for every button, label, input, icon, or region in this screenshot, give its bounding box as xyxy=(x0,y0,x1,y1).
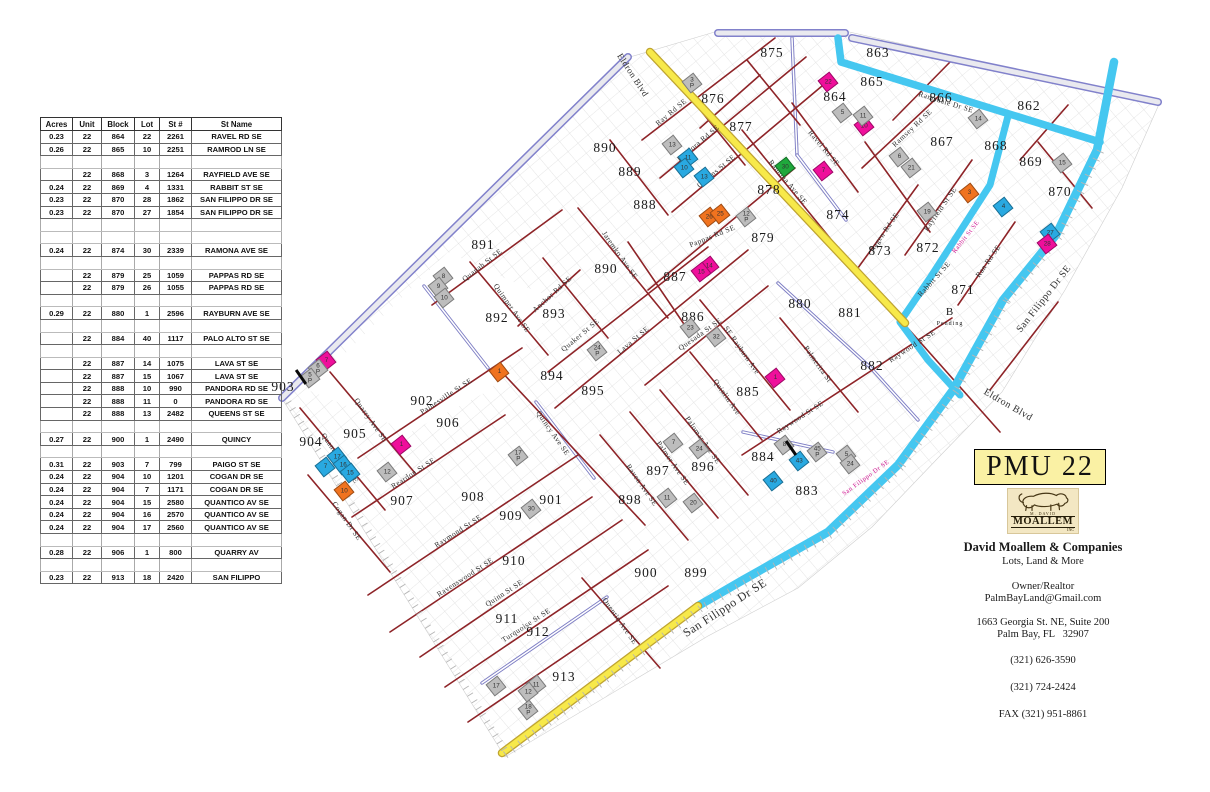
cell: 22 xyxy=(73,496,102,509)
col-header-st-name: St Name xyxy=(192,118,282,131)
cell xyxy=(41,345,73,358)
cell: 864 xyxy=(102,131,135,144)
table-row: 22888132482QUEENS ST SE xyxy=(41,408,282,421)
cell xyxy=(73,156,102,169)
cell: 800 xyxy=(160,546,192,559)
cell: 10 xyxy=(135,471,160,484)
cell: 1171 xyxy=(160,483,192,496)
cell xyxy=(160,534,192,547)
cell: PAPPAS RD SE xyxy=(192,269,282,282)
cell: 22 xyxy=(73,206,102,219)
cell: 22 xyxy=(73,370,102,383)
cell: 22 xyxy=(73,168,102,181)
cell: 1264 xyxy=(160,168,192,181)
cell: 880 xyxy=(102,307,135,320)
cell xyxy=(102,420,135,433)
cell: 2560 xyxy=(160,521,192,534)
cell: 2420 xyxy=(160,571,192,584)
cell xyxy=(135,345,160,358)
cell xyxy=(41,294,73,307)
cell: 2482 xyxy=(160,408,192,421)
cell: 1059 xyxy=(160,269,192,282)
cell: 2596 xyxy=(160,307,192,320)
cell: 27 xyxy=(135,206,160,219)
cell xyxy=(192,294,282,307)
cell: 888 xyxy=(102,408,135,421)
contact-line: 1663 Georgia St. NE, Suite 200 xyxy=(963,617,1123,628)
table-row: 0.2322870281862SAN FILIPPO DR SE xyxy=(41,193,282,206)
col-header-unit: Unit xyxy=(73,118,102,131)
cell xyxy=(73,219,102,232)
cell: COGAN DR SE xyxy=(192,483,282,496)
cell xyxy=(192,420,282,433)
cell: 903 xyxy=(102,458,135,471)
cell xyxy=(135,294,160,307)
cell: RABBIT ST SE xyxy=(192,181,282,194)
table-row: 0.242290471171COGAN DR SE xyxy=(41,483,282,496)
cell xyxy=(73,231,102,244)
table-row: 22888110PANDORA RD SE xyxy=(41,395,282,408)
cell xyxy=(160,294,192,307)
cell: 913 xyxy=(102,571,135,584)
table-row-blank xyxy=(41,156,282,169)
table-row: 2288810990PANDORA RD SE xyxy=(41,382,282,395)
table-row: 0.2422874302339RAMONA AVE SE xyxy=(41,244,282,257)
cell xyxy=(41,370,73,383)
cell xyxy=(73,445,102,458)
logo-suffix-text: INC xyxy=(1067,528,1074,532)
cell xyxy=(135,559,160,572)
cell: PAIGO ST SE xyxy=(192,458,282,471)
cell: 887 xyxy=(102,370,135,383)
contact-line: (321) 626-3590 xyxy=(963,655,1123,666)
cell: 22 xyxy=(135,131,160,144)
cell: QUANTICO AV SE xyxy=(192,521,282,534)
cell: 22 xyxy=(73,244,102,257)
cell: 868 xyxy=(102,168,135,181)
table-row: 22879261055PAPPAS RD SE xyxy=(41,282,282,295)
cell: 22 xyxy=(73,193,102,206)
cell xyxy=(73,345,102,358)
table-row-blank xyxy=(41,256,282,269)
cell xyxy=(41,156,73,169)
cell: 1 xyxy=(135,546,160,559)
cell xyxy=(135,534,160,547)
cell: 904 xyxy=(102,483,135,496)
table-row-blank xyxy=(41,219,282,232)
cell xyxy=(41,269,73,282)
cell: 22 xyxy=(73,395,102,408)
cell xyxy=(135,420,160,433)
cell xyxy=(41,332,73,345)
cell: 2490 xyxy=(160,433,192,446)
cell: 0.24 xyxy=(41,244,73,257)
cell: 22 xyxy=(73,282,102,295)
cell: 0.24 xyxy=(41,471,73,484)
cell: 22 xyxy=(73,307,102,320)
cell: 22 xyxy=(73,508,102,521)
cell: 904 xyxy=(102,508,135,521)
cell xyxy=(102,231,135,244)
cell: 1055 xyxy=(160,282,192,295)
cell xyxy=(160,156,192,169)
cell: 22 xyxy=(73,357,102,370)
cell xyxy=(192,319,282,332)
cell: 1117 xyxy=(160,332,192,345)
col-header-lot: Lot xyxy=(135,118,160,131)
cell: 0.28 xyxy=(41,546,73,559)
cell: 0.27 xyxy=(41,433,73,446)
cell xyxy=(41,219,73,232)
cell: 10 xyxy=(135,382,160,395)
cell: 22 xyxy=(73,458,102,471)
table-row-blank xyxy=(41,294,282,307)
cell: 22 xyxy=(73,546,102,559)
cell xyxy=(102,219,135,232)
cell xyxy=(135,156,160,169)
cell: PANDORA RD SE xyxy=(192,382,282,395)
cell: 904 xyxy=(102,471,135,484)
cell: 799 xyxy=(160,458,192,471)
table-row: 0.2422904162570QUANTICO AV SE xyxy=(41,508,282,521)
table-row-blank xyxy=(41,231,282,244)
cell: 0.23 xyxy=(41,193,73,206)
cell xyxy=(41,282,73,295)
cell xyxy=(135,231,160,244)
table-row: 0.2622865102251RAMROD LN SE xyxy=(41,143,282,156)
table-row-blank xyxy=(41,445,282,458)
cell: 0.24 xyxy=(41,483,73,496)
cell: 0.24 xyxy=(41,496,73,509)
cell: 2339 xyxy=(160,244,192,257)
cell: 1 xyxy=(135,307,160,320)
col-header-st-: St # xyxy=(160,118,192,131)
table-row: 22887141075LAVA ST SE xyxy=(41,357,282,370)
cell: 22 xyxy=(73,269,102,282)
cell: QUANTICO AV SE xyxy=(192,508,282,521)
cell xyxy=(192,156,282,169)
cell: PALO ALTO ST SE xyxy=(192,332,282,345)
table-row-blank xyxy=(41,420,282,433)
cell: 10 xyxy=(135,143,160,156)
cell xyxy=(41,357,73,370)
contact-line: David Moallem & Companies xyxy=(963,540,1123,555)
cell: QUINCY xyxy=(192,433,282,446)
contact-lines: David Moallem & CompaniesLots, Land & Mo… xyxy=(963,540,1123,720)
cell: 3 xyxy=(135,168,160,181)
cell: 887 xyxy=(102,357,135,370)
cell: 0 xyxy=(160,395,192,408)
cell: SAN FILIPPO DR SE xyxy=(192,206,282,219)
cell: 0.23 xyxy=(41,571,73,584)
cell xyxy=(192,445,282,458)
table-row: 0.292288012596RAYBURN AVE SE xyxy=(41,307,282,320)
cell: 7 xyxy=(135,458,160,471)
cell xyxy=(160,559,192,572)
cell: 22 xyxy=(73,433,102,446)
cell: 22 xyxy=(73,143,102,156)
table-row-blank xyxy=(41,534,282,547)
cell: 906 xyxy=(102,546,135,559)
cell xyxy=(41,408,73,421)
table-row: 0.2322870271854SAN FILIPPO DR SE xyxy=(41,206,282,219)
cell xyxy=(41,395,73,408)
table-row: 0.2422904152580QUANTICO AV SE xyxy=(41,496,282,509)
cell xyxy=(160,256,192,269)
cell: QUARRY AV xyxy=(192,546,282,559)
cell xyxy=(41,256,73,269)
cell: SAN FILIPPO DR SE xyxy=(192,193,282,206)
table-row-blank xyxy=(41,559,282,572)
cell: RAMROD LN SE xyxy=(192,143,282,156)
cell: 22 xyxy=(73,181,102,194)
table-row: 0.28229061800QUARRY AV xyxy=(41,546,282,559)
cell: 22 xyxy=(73,483,102,496)
cell: 1067 xyxy=(160,370,192,383)
cell xyxy=(160,231,192,244)
cell: 879 xyxy=(102,282,135,295)
cell xyxy=(102,156,135,169)
cell xyxy=(160,445,192,458)
cell xyxy=(192,534,282,547)
cell xyxy=(160,319,192,332)
cell: 30 xyxy=(135,244,160,257)
cell: 15 xyxy=(135,496,160,509)
cell: 900 xyxy=(102,433,135,446)
cell: 990 xyxy=(160,382,192,395)
cell: 13 xyxy=(135,408,160,421)
cell: 2251 xyxy=(160,143,192,156)
cell: 0.24 xyxy=(41,508,73,521)
cell: 22 xyxy=(73,332,102,345)
cell xyxy=(41,445,73,458)
cell: 879 xyxy=(102,269,135,282)
lot-table: AcresUnitBlockLotSt #St Name 0.232286422… xyxy=(40,117,282,584)
cell: 18 xyxy=(135,571,160,584)
cell: 4 xyxy=(135,181,160,194)
table-row: 0.2422904172560QUANTICO AV SE xyxy=(41,521,282,534)
cell: 16 xyxy=(135,508,160,521)
cell xyxy=(192,345,282,358)
plat-map-flyer: 8758638648658668628678688698708728738718… xyxy=(0,0,1210,792)
cell: 1075 xyxy=(160,357,192,370)
cell xyxy=(41,420,73,433)
cell: 22 xyxy=(73,521,102,534)
cell: 1201 xyxy=(160,471,192,484)
cell: 1854 xyxy=(160,206,192,219)
cell xyxy=(102,559,135,572)
cell: COGAN DR SE xyxy=(192,471,282,484)
cell xyxy=(192,256,282,269)
cell: 1331 xyxy=(160,181,192,194)
pmu-badge: PMU 22 xyxy=(974,449,1106,485)
cell: RAYFIELD AVE SE xyxy=(192,168,282,181)
table-row: 22887151067LAVA ST SE xyxy=(41,370,282,383)
cell: 865 xyxy=(102,143,135,156)
cell: 17 xyxy=(135,521,160,534)
table-row: 2286831264RAYFIELD AVE SE xyxy=(41,168,282,181)
cell: 11 xyxy=(135,395,160,408)
cell: 884 xyxy=(102,332,135,345)
cell: 7 xyxy=(135,483,160,496)
cell: LAVA ST SE xyxy=(192,370,282,383)
cell: 28 xyxy=(135,193,160,206)
company-logo: M. DAVID MOALLEM INC xyxy=(1007,488,1079,534)
cell: PAPPAS RD SE xyxy=(192,282,282,295)
contact-line: Palm Bay, FL 32907 xyxy=(963,629,1123,640)
col-header-block: Block xyxy=(102,118,135,131)
cell xyxy=(41,559,73,572)
table-row: 0.272290012490QUINCY xyxy=(41,433,282,446)
cell: RAVEL RD SE xyxy=(192,131,282,144)
cell: 26 xyxy=(135,282,160,295)
cell xyxy=(73,294,102,307)
cell: 0.23 xyxy=(41,131,73,144)
cell: QUANTICO AV SE xyxy=(192,496,282,509)
cell xyxy=(41,319,73,332)
table-row: 0.31229037799PAIGO ST SE xyxy=(41,458,282,471)
contact-line: PalmBayLand@Gmail.com xyxy=(963,593,1123,604)
cell xyxy=(73,256,102,269)
cell xyxy=(102,534,135,547)
cell xyxy=(41,168,73,181)
table-row: 0.242286941331RABBIT ST SE xyxy=(41,181,282,194)
cell xyxy=(160,345,192,358)
cell: 904 xyxy=(102,521,135,534)
cell: 0.24 xyxy=(41,181,73,194)
table-row: 22879251059PAPPAS RD SE xyxy=(41,269,282,282)
cell xyxy=(192,231,282,244)
cell: 2570 xyxy=(160,508,192,521)
cell: 22 xyxy=(73,131,102,144)
cell: 0.23 xyxy=(41,206,73,219)
cell xyxy=(73,319,102,332)
cell xyxy=(160,420,192,433)
cell: 0.24 xyxy=(41,521,73,534)
cell: LAVA ST SE xyxy=(192,357,282,370)
cell: 22 xyxy=(73,382,102,395)
contact-line: Lots, Land & More xyxy=(963,556,1123,567)
cell: 2580 xyxy=(160,496,192,509)
table-row-blank xyxy=(41,345,282,358)
table-row: 0.2322913182420SAN FILIPPO xyxy=(41,571,282,584)
cell: 15 xyxy=(135,370,160,383)
cell xyxy=(192,219,282,232)
cell xyxy=(135,445,160,458)
cell xyxy=(41,231,73,244)
cell: 870 xyxy=(102,206,135,219)
cell xyxy=(135,319,160,332)
cell xyxy=(102,445,135,458)
cell: 22 xyxy=(73,571,102,584)
cell xyxy=(73,420,102,433)
cell: 1862 xyxy=(160,193,192,206)
cell: 888 xyxy=(102,395,135,408)
cell xyxy=(102,256,135,269)
cell: 869 xyxy=(102,181,135,194)
brokerage-card: M. DAVID MOALLEM INC David Moallem & Com… xyxy=(963,488,1123,720)
cell: 1 xyxy=(135,433,160,446)
cell: 22 xyxy=(73,408,102,421)
cell: PANDORA RD SE xyxy=(192,395,282,408)
contact-line: (321) 724-2424 xyxy=(963,682,1123,693)
lot-table-header: AcresUnitBlockLotSt #St Name xyxy=(41,118,282,131)
contact-line: Owner/Realtor xyxy=(963,581,1123,592)
cell: 14 xyxy=(135,357,160,370)
cell xyxy=(160,219,192,232)
cell: 0.29 xyxy=(41,307,73,320)
cell xyxy=(135,256,160,269)
cell xyxy=(73,559,102,572)
cell: 2261 xyxy=(160,131,192,144)
cell: 870 xyxy=(102,193,135,206)
table-row-blank xyxy=(41,319,282,332)
col-header-acres: Acres xyxy=(41,118,73,131)
table-row: 22884401117PALO ALTO ST SE xyxy=(41,332,282,345)
lion-icon xyxy=(1014,490,1072,512)
cell: 25 xyxy=(135,269,160,282)
cell: SAN FILIPPO xyxy=(192,571,282,584)
cell: RAMONA AVE SE xyxy=(192,244,282,257)
table-row: 0.2422904101201COGAN DR SE xyxy=(41,471,282,484)
cell: 874 xyxy=(102,244,135,257)
cell xyxy=(135,219,160,232)
cell xyxy=(41,534,73,547)
cell: 904 xyxy=(102,496,135,509)
logo-name-text: MOALLEM xyxy=(1011,516,1075,529)
table-row: 0.2322864222261RAVEL RD SE xyxy=(41,131,282,144)
cell xyxy=(102,319,135,332)
cell xyxy=(41,382,73,395)
cell xyxy=(73,534,102,547)
cell: 0.31 xyxy=(41,458,73,471)
cell: 40 xyxy=(135,332,160,345)
cell xyxy=(192,559,282,572)
contact-line: FAX (321) 951-8861 xyxy=(963,709,1123,720)
cell: QUEENS ST SE xyxy=(192,408,282,421)
cell: RAYBURN AVE SE xyxy=(192,307,282,320)
cell xyxy=(102,345,135,358)
cell xyxy=(102,294,135,307)
cell: 0.26 xyxy=(41,143,73,156)
cell: 22 xyxy=(73,471,102,484)
cell: 888 xyxy=(102,382,135,395)
